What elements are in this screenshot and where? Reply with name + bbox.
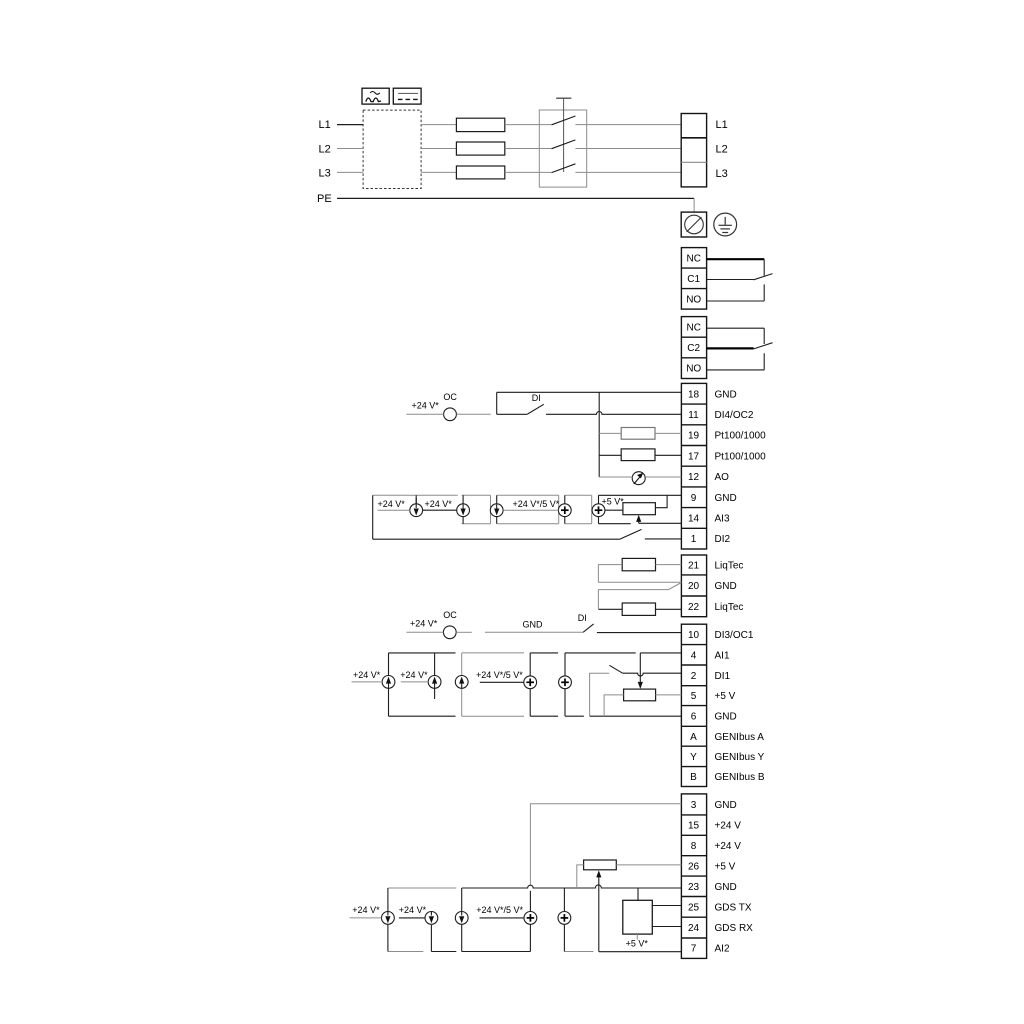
svg-text:NC: NC [686,322,700,333]
svg-text:Pt100/1000: Pt100/1000 [715,451,767,462]
svg-text:19: 19 [688,431,700,442]
svg-text:+5 V*: +5 V* [626,939,649,949]
svg-text:Y: Y [690,752,697,763]
svg-text:+24 V*: +24 V* [399,905,427,915]
svg-text:GDS TX: GDS TX [715,902,752,913]
svg-text:25: 25 [688,902,700,913]
svg-text:11: 11 [688,410,699,421]
svg-text:GND: GND [715,493,737,504]
svg-text:+24 V*/5 V*: +24 V*/5 V* [476,670,523,680]
svg-text:PE: PE [317,193,332,205]
svg-text:DI3/OC1: DI3/OC1 [715,630,754,641]
svg-text:NO: NO [686,294,701,305]
svg-text:GND: GND [715,882,737,893]
svg-text:17: 17 [688,451,700,462]
svg-text:+24 V*/5 V*: +24 V*/5 V* [513,499,560,509]
svg-text:12: 12 [688,472,700,483]
svg-text:DI: DI [532,393,541,403]
svg-text:AI3: AI3 [715,514,730,525]
svg-text:L1: L1 [716,119,728,131]
svg-text:GND: GND [523,619,544,629]
svg-text:+24 V*: +24 V* [410,619,438,629]
svg-text:GND: GND [715,800,737,811]
svg-text:+24 V*: +24 V* [425,499,453,509]
svg-text:LiqTec: LiqTec [715,561,744,572]
svg-text:14: 14 [688,514,700,525]
svg-text:15: 15 [688,821,700,832]
svg-text:+5 V: +5 V [715,861,736,872]
svg-text:22: 22 [688,602,700,613]
svg-text:NO: NO [686,364,701,375]
svg-text:4: 4 [691,650,697,661]
svg-text:OC: OC [443,610,457,620]
svg-text:AI1: AI1 [715,650,730,661]
svg-text:8: 8 [691,841,697,852]
svg-text:26: 26 [688,861,700,872]
svg-text:AI2: AI2 [715,944,730,955]
svg-text:1: 1 [691,534,697,545]
svg-text:9: 9 [691,493,697,504]
svg-text:7: 7 [691,944,697,955]
svg-text:+5 V*: +5 V* [602,497,625,507]
svg-text:6: 6 [691,712,697,723]
svg-text:GENIbus A: GENIbus A [715,732,765,743]
svg-text:GENIbus Y: GENIbus Y [715,752,765,763]
svg-text:GDS RX: GDS RX [715,923,754,934]
svg-text:DI1: DI1 [715,671,731,682]
svg-text:2: 2 [691,671,697,682]
svg-text:L3: L3 [716,168,728,180]
svg-text:23: 23 [688,882,700,893]
svg-text:+24 V*: +24 V* [353,670,381,680]
svg-text:L2: L2 [319,143,331,155]
svg-text:3: 3 [691,800,697,811]
svg-text:DI4/OC2: DI4/OC2 [715,410,754,421]
svg-text:GND: GND [715,712,737,723]
svg-text:+24 V: +24 V [715,841,742,852]
svg-text:GND: GND [715,389,737,400]
svg-text:DI: DI [578,613,587,623]
svg-text:DI2: DI2 [715,534,731,545]
svg-text:+24 V*: +24 V* [378,499,406,509]
svg-text:NC: NC [686,253,700,264]
svg-text:OC: OC [443,392,457,402]
svg-text:AO: AO [715,472,730,483]
svg-text:B: B [690,772,697,783]
svg-text:L1: L1 [319,119,331,131]
svg-text:GENIbus B: GENIbus B [715,772,765,783]
svg-text:10: 10 [688,630,700,641]
svg-text:+24 V: +24 V [715,821,742,832]
svg-text:+24 V*: +24 V* [400,670,428,680]
svg-text:20: 20 [688,581,700,592]
svg-text:+24 V*: +24 V* [352,905,380,915]
svg-text:Pt100/1000: Pt100/1000 [715,431,767,442]
svg-text:+24 V*: +24 V* [412,401,440,411]
svg-text:C1: C1 [687,274,700,285]
svg-text:5: 5 [691,691,697,702]
svg-text:24: 24 [688,923,700,934]
svg-text:GND: GND [715,581,737,592]
svg-text:L2: L2 [716,144,728,156]
svg-text:+24 V*/5 V*: +24 V*/5 V* [476,905,523,915]
svg-text:21: 21 [688,561,700,572]
svg-text:18: 18 [688,389,700,400]
svg-text:L3: L3 [319,167,331,179]
svg-text:+5 V: +5 V [715,691,736,702]
svg-text:LiqTec: LiqTec [715,602,744,613]
svg-text:C2: C2 [687,343,700,354]
svg-text:A: A [690,732,697,743]
